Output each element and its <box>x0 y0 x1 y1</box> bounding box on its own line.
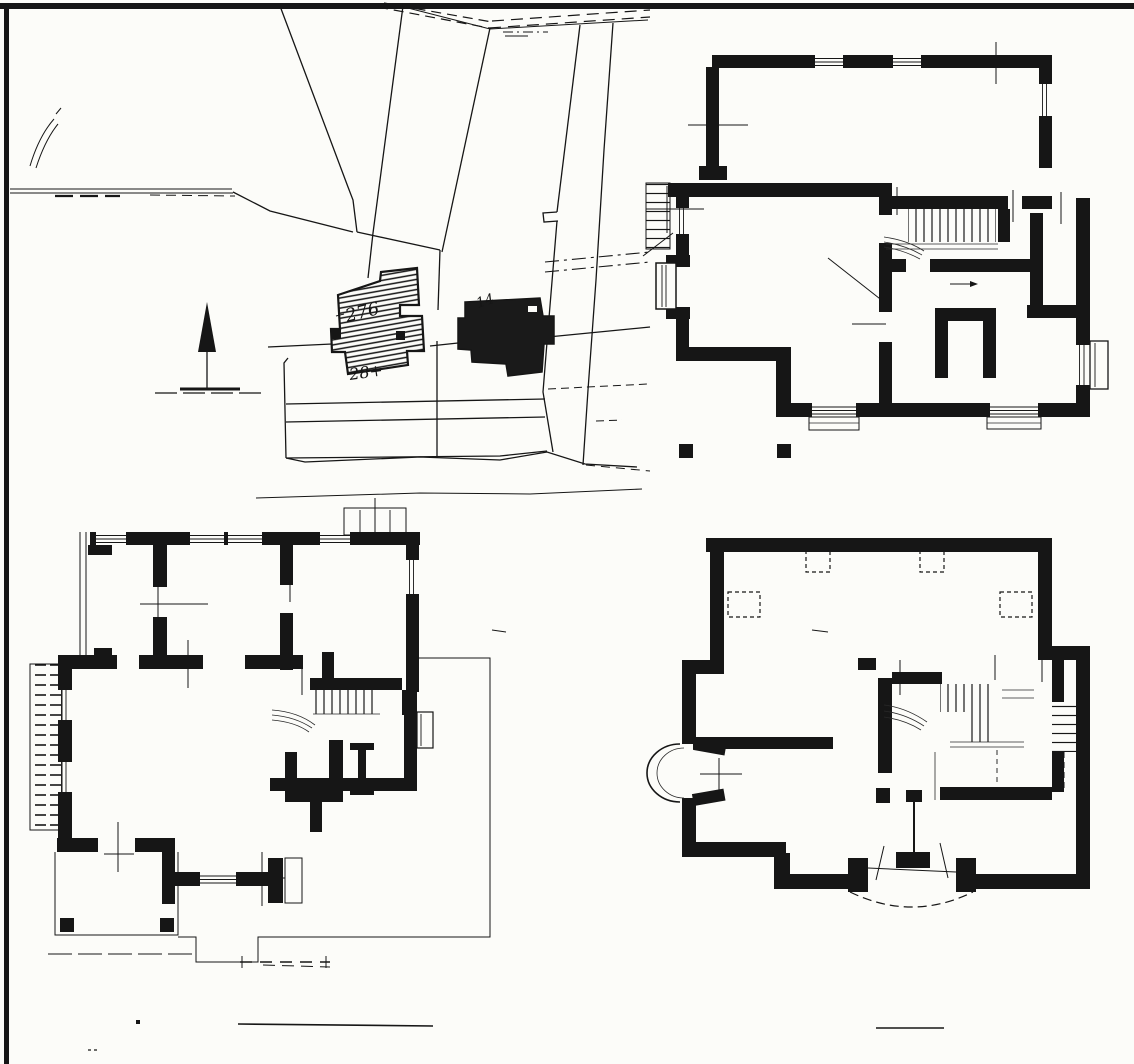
floor-plan-bottom-left <box>30 498 490 967</box>
drawing-canvas: 276 28+ 14 <box>0 0 1134 1064</box>
exterior-stair <box>643 183 673 256</box>
bay-window-left <box>656 255 690 319</box>
centerline-marks <box>812 630 1042 785</box>
building-hatched <box>331 268 424 374</box>
bay-window-right <box>1090 341 1108 389</box>
terrace-outline <box>48 658 490 967</box>
interior-walls <box>693 658 1064 803</box>
side-bay-window <box>417 712 433 748</box>
exterior-walls <box>57 532 420 904</box>
stray-marks <box>88 630 944 1050</box>
floor-plan-bottom-right <box>647 538 1090 907</box>
staircase <box>884 209 998 259</box>
parcel-boundaries <box>233 6 650 498</box>
staircase <box>272 678 402 732</box>
pergola-hatch-strip <box>30 664 62 830</box>
north-arrow <box>155 302 264 393</box>
veranda-edge <box>80 532 86 660</box>
building-solid <box>458 298 554 376</box>
columns <box>679 444 791 458</box>
staircase <box>884 684 1034 800</box>
drawing-sheet: 276 28+ 14 <box>0 0 1134 1064</box>
floor-plan-top-right <box>643 42 1108 458</box>
porch <box>55 852 178 935</box>
bow-window <box>848 790 976 907</box>
centerline-marks <box>104 560 302 906</box>
porch-steps <box>809 417 1041 430</box>
parcel-label-28: 28+ <box>347 360 384 384</box>
topleft-road-marks <box>10 108 235 196</box>
site-plan: 276 28+ 14 <box>155 3 650 498</box>
door-step <box>285 858 302 903</box>
